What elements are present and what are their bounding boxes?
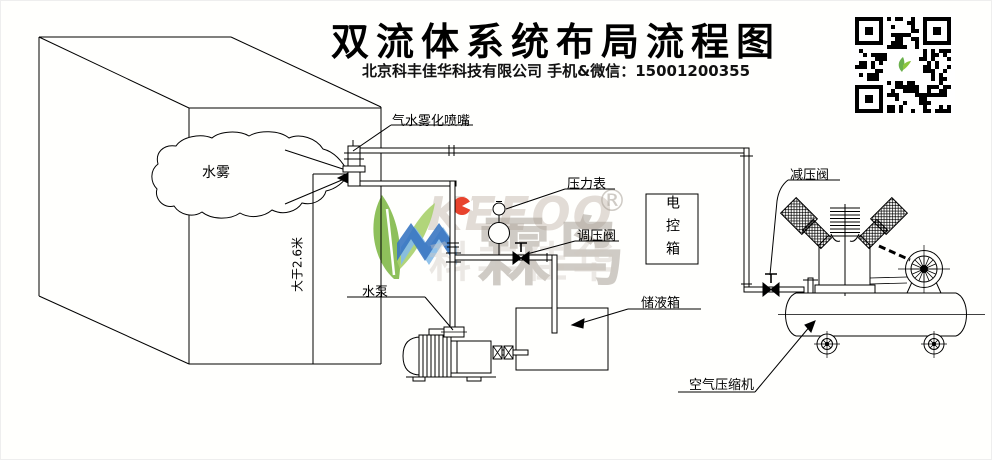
air-pipe-top (359, 148, 749, 153)
flywheel (870, 245, 950, 293)
height-dimension-line (313, 174, 355, 364)
label-reducing-valve: 减压阀 (790, 164, 829, 183)
water-pump-symbol (403, 327, 513, 381)
flow-diagram-page: KEEOO 霖鸟 ® 科丰佳华 (0, 0, 992, 460)
reducing-valve-symbol (763, 274, 779, 296)
label-water-mist: 水雾 (202, 162, 230, 182)
compressor-fins (830, 204, 860, 296)
label-air-compressor: 空气压缩机 (689, 374, 754, 393)
qr-center-logo-icon (889, 51, 917, 79)
storage-tank-symbol (516, 308, 608, 370)
bypass-down-pipe (552, 255, 557, 333)
label-water-pump: 水泵 (362, 281, 388, 300)
label-atomizing-nozzle: 气水雾化喷嘴 (392, 110, 470, 129)
bypass-pipe (455, 255, 557, 260)
air-pipe-down (744, 148, 749, 290)
regulating-valve-symbol (513, 243, 529, 264)
wheel-left (814, 331, 840, 358)
wheel-right (921, 331, 947, 358)
water-riser-pipe (450, 181, 455, 333)
compressor-cylinders (781, 198, 908, 249)
diagram-line-art (1, 1, 992, 460)
qr-code (851, 13, 955, 117)
label-regulating-valve: 调压阀 (577, 225, 616, 244)
pressure-gauge-assembly (489, 202, 510, 256)
water-pipe-to-nozzle (359, 181, 456, 186)
belt-line (879, 246, 910, 260)
label-height-dimension: 大于2.6米 (289, 227, 306, 303)
label-storage-tank: 储液箱 (641, 292, 680, 311)
label-pressure-gauge: 压力表 (567, 173, 606, 192)
label-control-box: 电控箱 (646, 194, 698, 264)
mist-cloud (152, 132, 349, 218)
